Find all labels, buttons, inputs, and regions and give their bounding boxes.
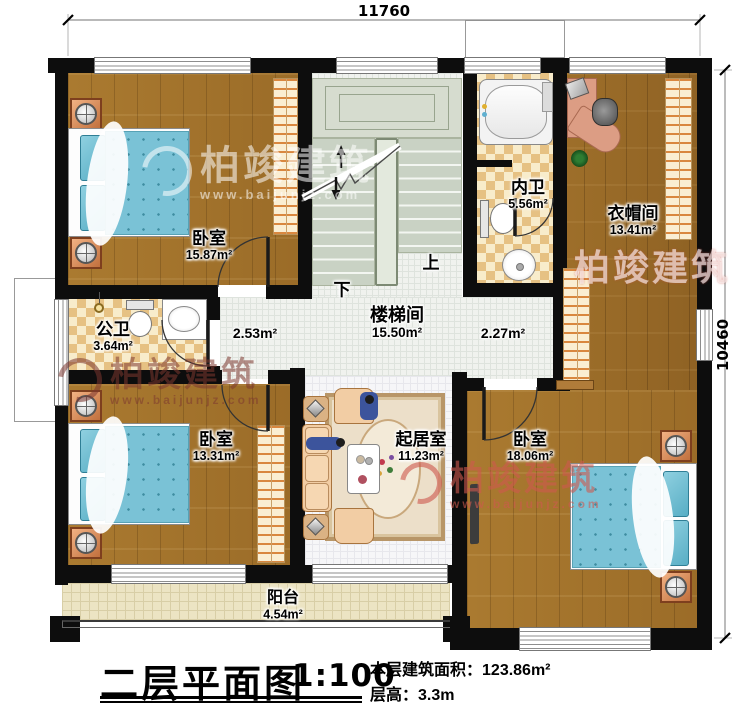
- side-table: [303, 514, 329, 540]
- wall-passage-cloak: [553, 297, 563, 390]
- wardrobe-cloakroom-right: [665, 78, 692, 240]
- room-area: 13.31m²: [193, 449, 240, 463]
- coffee-table: [347, 444, 380, 494]
- wall-bedroombr-top-a: [467, 378, 484, 391]
- nightstand: [660, 430, 692, 462]
- room-name: 楼梯间: [370, 306, 424, 325]
- stair-landing: [312, 78, 462, 138]
- sink-basin: [168, 306, 200, 332]
- plan-title: 二层平面图: [100, 653, 305, 708]
- stair-landing-outline-inner: [339, 94, 435, 122]
- lamp-icon: [75, 103, 97, 125]
- tv-icon: [470, 484, 479, 545]
- balcony-railing: [62, 620, 450, 628]
- wall-living-bedroombr: [452, 372, 467, 628]
- toilet-tank: [126, 300, 154, 310]
- wall-bedroomtl-bottom-a: [55, 285, 218, 299]
- cabinet: [556, 380, 594, 390]
- room-label-cloakroom: 衣帽间 13.41m²: [608, 205, 659, 237]
- wardrobe-cloakroom-left: [563, 268, 590, 383]
- lamp-icon: [75, 242, 97, 264]
- stair-up-label: 上: [423, 249, 440, 274]
- room-name: 卧室: [507, 431, 554, 449]
- window-right-cloakroom: [697, 310, 712, 360]
- window-left-bathpublic: [55, 300, 68, 405]
- room-label-bedroom-br: 卧室 18.06m²: [507, 431, 554, 463]
- lamp-icon: [75, 532, 97, 554]
- faucet-icon: [482, 104, 487, 109]
- table-lamp-icon: [306, 399, 324, 417]
- stair-railing: [375, 138, 398, 286]
- window-bottom-bedroombl: [112, 565, 245, 583]
- room-area: 13.41m²: [608, 223, 659, 237]
- room-area: 15.87m²: [186, 248, 233, 262]
- dimension-top-line: [63, 14, 705, 56]
- bed-bedroom-tl: [68, 128, 190, 237]
- nightstand: [660, 571, 692, 603]
- wall-bedroomtl-stair: [298, 73, 312, 299]
- room-name: 阳台: [263, 590, 303, 607]
- room-label-bedroom-bl: 卧室 13.31m²: [193, 431, 240, 463]
- floor-area-line: 本层建筑面积：123.86m²: [370, 656, 551, 680]
- person-head: [336, 438, 345, 447]
- wardrobe-bedroom-tl: [273, 78, 298, 235]
- wall-bath-inner-bottom: [463, 283, 567, 297]
- stair-down-label: 下: [334, 276, 351, 301]
- office-chair: [592, 98, 618, 126]
- room-label-bedroom-tl: 卧室 15.87m²: [186, 230, 233, 262]
- room-label-bath-inner: 内卫 5.56m²: [508, 179, 548, 211]
- room-label-living-room: 起居室 11.23m²: [396, 431, 447, 463]
- rug-flower: [387, 467, 393, 473]
- wall-bathpublic-right-a: [207, 297, 220, 320]
- room-name: 卧室: [193, 431, 240, 449]
- wall-hall-bottom-a: [55, 370, 222, 384]
- lamp-icon: [665, 576, 687, 598]
- room-area: 15.50m²: [370, 325, 424, 341]
- stair-flight-left: [312, 138, 375, 286]
- dimension-top-value: 11760: [358, 2, 410, 20]
- side-table: [303, 396, 329, 422]
- wardrobe-bedroom-bl: [257, 425, 285, 563]
- area-label-hall-left: 2.53m²: [233, 325, 277, 341]
- faucet-icon: [482, 112, 487, 117]
- table-item: [356, 455, 365, 464]
- room-area: 2.53m²: [233, 325, 277, 341]
- window-top-stairwell: [337, 58, 437, 73]
- person-head: [365, 395, 374, 404]
- wall-bath-cloak: [553, 73, 567, 297]
- plan-scale: 1:100: [292, 658, 396, 694]
- toilet-tank: [480, 200, 489, 238]
- lamp-icon: [75, 395, 97, 417]
- sink-drain: [516, 263, 524, 271]
- bed-bedroom-bl: [68, 423, 190, 525]
- table-flower: [358, 475, 367, 484]
- nightstand: [70, 390, 102, 422]
- table-item: [365, 457, 373, 465]
- room-name: 内卫: [508, 179, 548, 197]
- window-top-cloakroom: [570, 58, 665, 73]
- bay-window-left: [14, 278, 58, 422]
- floor-balcony: [62, 583, 450, 622]
- floor-height-value: 3.3m: [418, 687, 454, 704]
- window-top-bedroomtl: [95, 58, 250, 73]
- rug-flower: [389, 455, 394, 460]
- room-name: 起居室: [396, 431, 447, 449]
- sofa-cushion: [305, 483, 329, 510]
- room-label-balcony: 阳台 4.54m²: [263, 590, 303, 621]
- room-area: 5.56m²: [508, 197, 548, 211]
- window-bottom-living: [313, 565, 447, 583]
- bath-shelf: [542, 82, 553, 112]
- sofa-cushion: [305, 455, 329, 482]
- bed-bedroom-br: [570, 463, 697, 570]
- armchair: [334, 508, 374, 544]
- room-area: 3.64m²: [93, 339, 133, 353]
- room-area: 2.27m²: [481, 325, 525, 341]
- wall-bath-inner-stub: [477, 160, 512, 167]
- room-name: 公卫: [93, 321, 133, 339]
- roof-projection: [465, 20, 565, 58]
- room-name: 衣帽间: [608, 205, 659, 223]
- floor-area-value: 123.86m²: [482, 662, 551, 679]
- area-label-hall-right: 2.27m²: [481, 325, 525, 341]
- plant-icon: [571, 150, 588, 167]
- window-bottom-bedroombr: [520, 628, 650, 650]
- room-label-bath-public: 公卫 3.64m²: [93, 321, 133, 353]
- ceiling-lamp-icon: [94, 303, 104, 313]
- stair-flight-right: [398, 138, 462, 253]
- nightstand: [70, 98, 102, 130]
- window-top-bath: [465, 58, 540, 73]
- table-lamp-icon: [306, 517, 324, 535]
- room-area: 18.06m²: [507, 449, 554, 463]
- floor-plan-canvas: 卧室 15.87m² 内卫 5.56m² 衣帽间 13.41m² 公卫 3.64…: [0, 0, 750, 715]
- dimension-right-value: 10460: [714, 319, 732, 371]
- room-name: 卧室: [186, 230, 233, 248]
- room-area: 11.23m²: [396, 449, 447, 463]
- lamp-icon: [665, 435, 687, 457]
- wall-stair-bath: [463, 73, 477, 297]
- wall-bedroomtl-bottom-b: [266, 285, 305, 299]
- bathtub-basin: [485, 85, 547, 139]
- room-area: 4.54m²: [263, 607, 303, 621]
- room-label-stairwell: 楼梯间 15.50m²: [370, 306, 424, 340]
